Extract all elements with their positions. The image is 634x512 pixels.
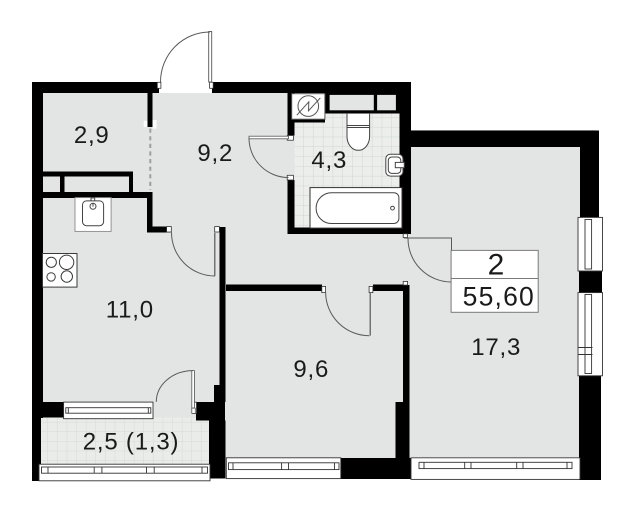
svg-text:9,2: 9,2 <box>197 140 233 167</box>
svg-text:55,60: 55,60 <box>463 281 535 311</box>
svg-text:4,3: 4,3 <box>311 147 347 174</box>
svg-text:2: 2 <box>488 249 505 282</box>
svg-text:9,6: 9,6 <box>293 356 329 383</box>
svg-text:2,9: 2,9 <box>74 122 110 149</box>
svg-text:11,0: 11,0 <box>106 297 154 324</box>
svg-text:2,5 (1,3): 2,5 (1,3) <box>83 428 180 455</box>
svg-text:17,3: 17,3 <box>471 334 521 361</box>
